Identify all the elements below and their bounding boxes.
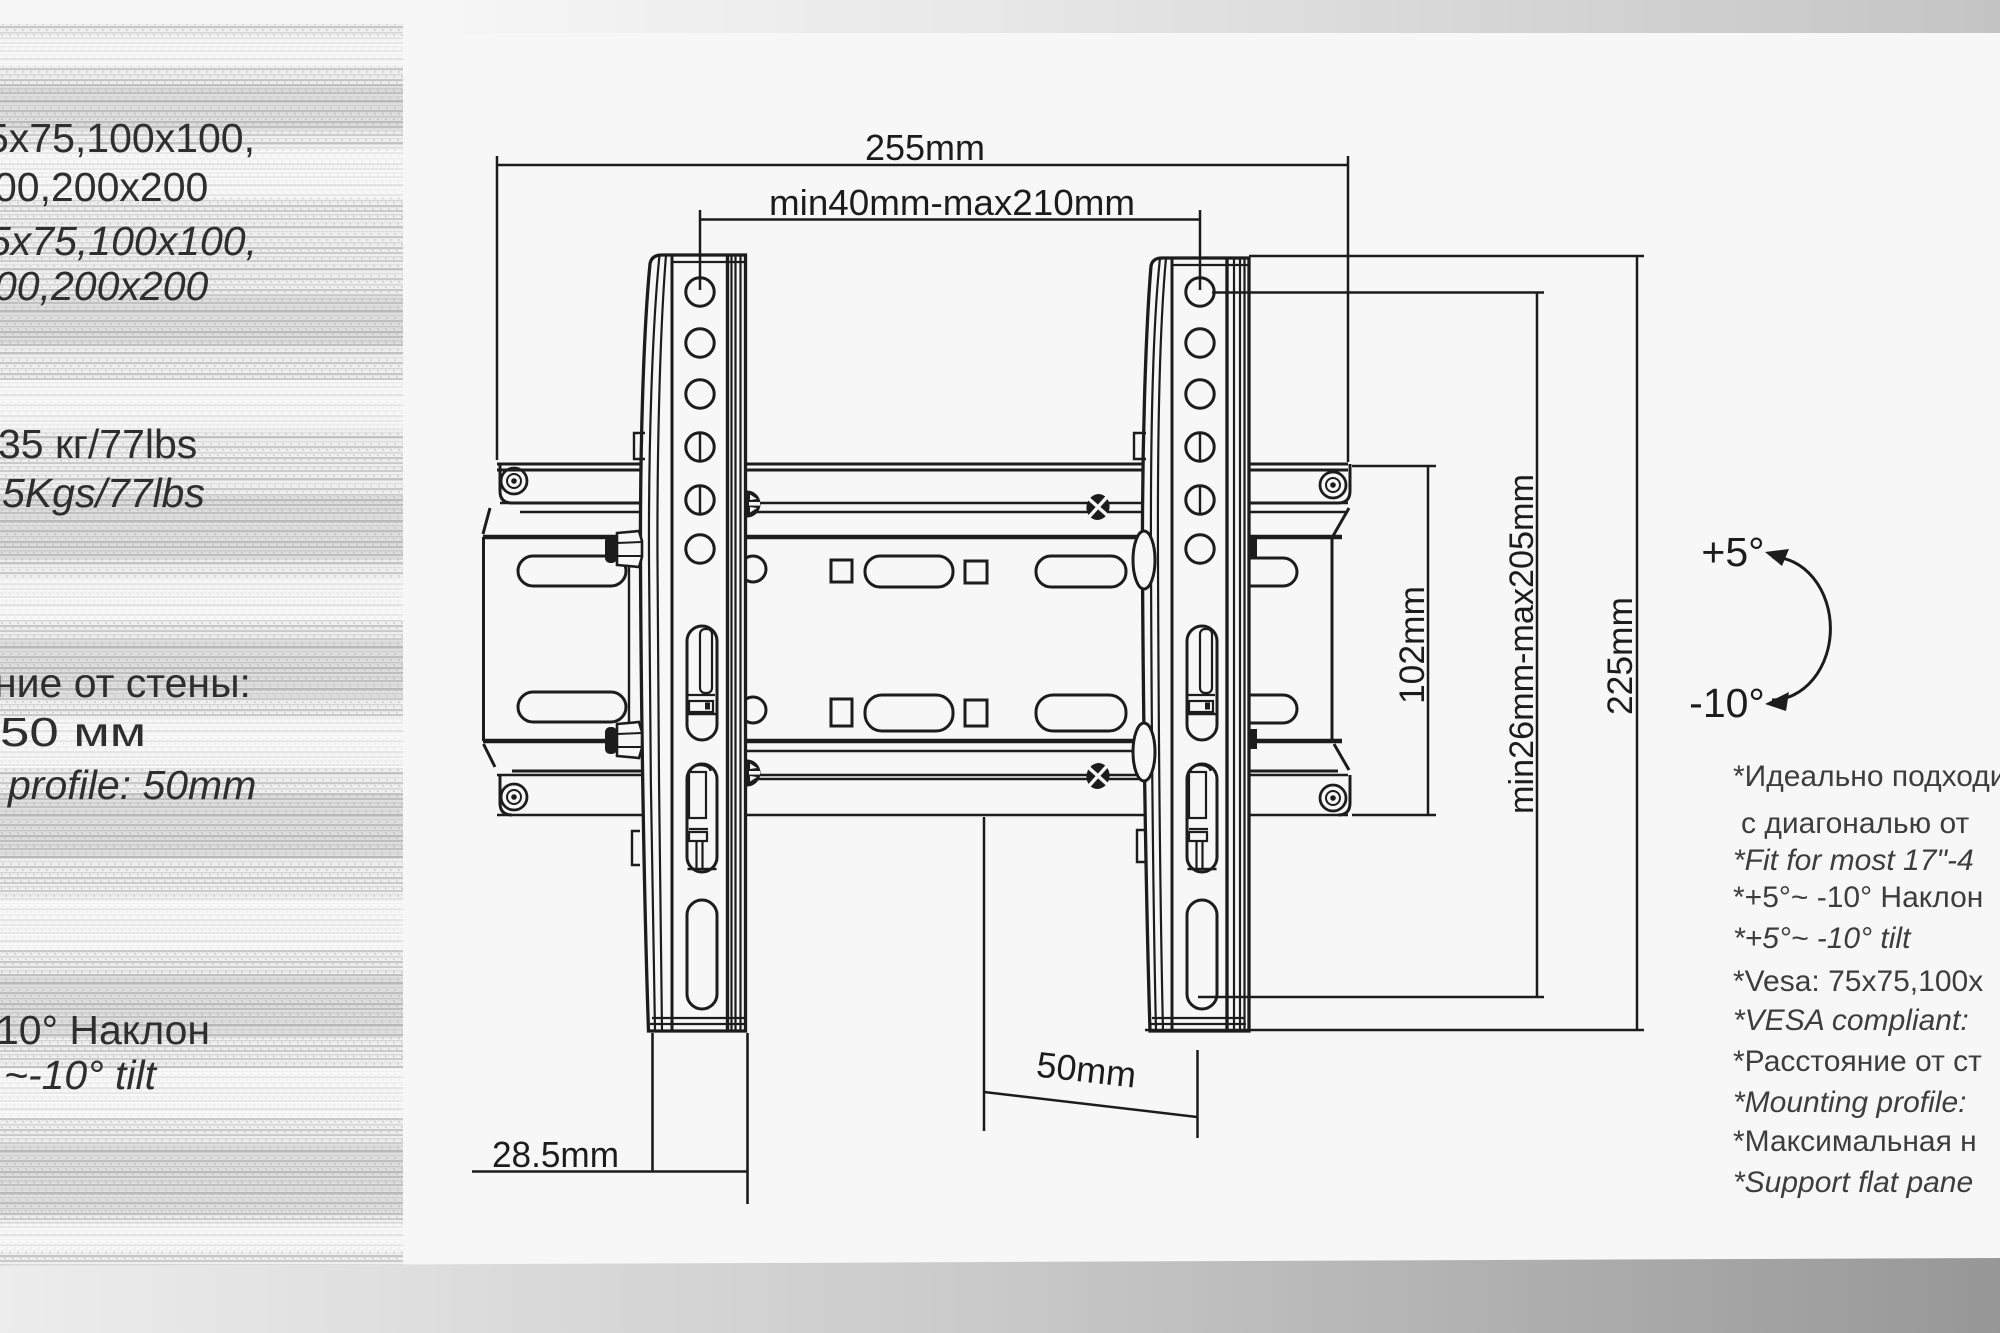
svg-text:00,200x200: 00,200x200 — [0, 164, 208, 210]
svg-text:*Fit for most 17"-4: *Fit for most 17"-4 — [1733, 844, 1974, 877]
svg-text:*Vesa: 75x75,100x: *Vesa: 75x75,100x — [1733, 965, 1983, 998]
svg-text:*Расстояние от ст: *Расстояние от ст — [1733, 1045, 1982, 1078]
svg-text:~-10° tilt: ~-10° tilt — [4, 1052, 158, 1098]
svg-text:min26mm-max205mm: min26mm-max205mm — [1503, 474, 1541, 814]
svg-text:с диагональю от: с диагональю от — [1741, 807, 1969, 840]
svg-text:ние от стены:: ние от стены: — [0, 660, 251, 706]
svg-text:255mm: 255mm — [865, 127, 985, 168]
svg-text:35 кг/77lbs: 35 кг/77lbs — [0, 421, 197, 467]
svg-text:*Максимальная н: *Максимальная н — [1733, 1125, 1977, 1158]
svg-text:102mm: 102mm — [1392, 586, 1432, 704]
svg-text:00,200x200: 00,200x200 — [0, 263, 209, 309]
svg-text:10° Наклон: 10° Наклон — [0, 1007, 210, 1053]
svg-text:*+5°~ -10° tilt: *+5°~ -10° tilt — [1733, 922, 1912, 955]
svg-text:profile: 50mm: profile: 50mm — [6, 762, 256, 808]
svg-text:5Kgs/77lbs: 5Kgs/77lbs — [2, 470, 205, 516]
svg-text:*Support flat pane: *Support flat pane — [1733, 1166, 1973, 1199]
svg-text:min40mm-max210mm: min40mm-max210mm — [769, 182, 1135, 223]
svg-text:*+5°~ -10° Наклон: *+5°~ -10° Наклон — [1733, 881, 1983, 914]
svg-text:5x75,100x100,: 5x75,100x100, — [0, 115, 255, 161]
svg-text:-10°: -10° — [1689, 680, 1765, 726]
svg-text:28.5mm: 28.5mm — [492, 1134, 619, 1175]
svg-text:*VESA compliant:: *VESA compliant: — [1733, 1004, 1969, 1037]
svg-text:50 мм: 50 мм — [0, 709, 146, 755]
svg-text:*Идеально подходит: *Идеально подходит — [1733, 760, 2000, 793]
svg-text:+5°: +5° — [1701, 529, 1764, 575]
svg-text:5x75,100x100,: 5x75,100x100, — [0, 218, 257, 264]
svg-text:225mm: 225mm — [1600, 597, 1640, 715]
svg-text:*Mounting profile:: *Mounting profile: — [1733, 1086, 1966, 1119]
